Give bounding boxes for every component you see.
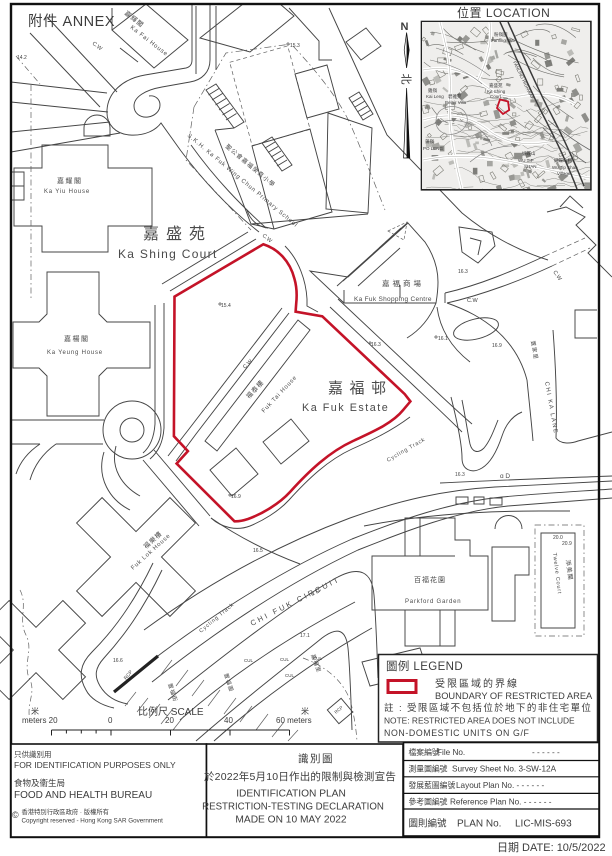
svg-text:File No.: File No. — [437, 748, 465, 757]
svg-text:16.3: 16.3 — [371, 342, 381, 348]
svg-text:40: 40 — [224, 716, 233, 725]
svg-text:meters 20: meters 20 — [22, 716, 58, 725]
svg-text:註 : 受限區域不包括位於地下的非住宅單位: 註 : 受限區域不包括位於地下的非住宅單位 — [384, 702, 592, 714]
svg-text:於2022年5月10日作出的限制與檢測宣告: 於2022年5月10日作出的限制與檢測宣告 — [204, 770, 396, 783]
svg-text:碧雅苑: 碧雅苑 — [448, 93, 462, 100]
svg-text:Ka Yeung House: Ka Yeung House — [47, 350, 103, 356]
svg-text:20: 20 — [165, 716, 174, 725]
svg-text:60 meters: 60 meters — [276, 716, 312, 725]
svg-text:©: © — [12, 810, 19, 820]
svg-text:Layout Plan No. - - - - -: Layout Plan No. - - - - - - — [456, 781, 545, 790]
svg-text:FOOD AND HEALTH BUREAU: FOOD AND HEALTH BUREAU — [14, 790, 152, 801]
svg-text:圖例 LEGEND: 圖例 LEGEND — [386, 659, 463, 673]
svg-text:IDENTIFICATION PLAN: IDENTIFICATION PLAN — [236, 789, 346, 800]
svg-text:NOTE: RESTRICTED AREA DOES NOT: NOTE: RESTRICTED AREA DOES NOT INCLUDE — [384, 716, 575, 726]
svg-text:參考圖編號: 參考圖編號 — [409, 797, 448, 807]
svg-text:嘉盛苑: 嘉盛苑 — [489, 82, 503, 89]
svg-text:米: 米 — [301, 706, 309, 716]
svg-text:N: N — [401, 21, 409, 33]
svg-text:C.W: C.W — [467, 298, 479, 304]
svg-text:蒲嶺: 蒲嶺 — [425, 138, 434, 145]
svg-text:Fanling Wai: Fanling Wai — [491, 38, 515, 43]
svg-text:0: 0 — [108, 716, 113, 725]
svg-text:蝴蝶山村: 蝴蝶山村 — [554, 157, 572, 164]
svg-text:嘉福商場: 嘉福商場 — [382, 278, 424, 288]
svg-text:北: 北 — [400, 74, 413, 85]
svg-text:百福花園: 百福花園 — [414, 575, 446, 584]
svg-text:Survey Sheet No. 3-SW-12A: Survey Sheet No. 3-SW-12A — [452, 765, 557, 774]
svg-text:14.2: 14.2 — [17, 55, 27, 61]
svg-text:Village: Village — [557, 171, 571, 176]
svg-text:RESTRICTION-TESTING DECLARATIO: RESTRICTION-TESTING DECLARATION — [202, 802, 384, 813]
svg-text:Belair Villa: Belair Villa — [445, 100, 467, 105]
svg-text:PLAN No.: PLAN No. — [457, 819, 501, 830]
svg-text:16.9: 16.9 — [492, 343, 502, 349]
svg-text:識別圖: 識別圖 — [298, 752, 334, 765]
svg-text:16.9: 16.9 — [231, 494, 241, 500]
svg-text:Parkford Garden: Parkford Garden — [405, 599, 461, 605]
svg-text:嘉福邨: 嘉福邨 — [328, 380, 393, 397]
svg-text:ɑ D: ɑ D — [500, 473, 510, 480]
svg-text:Ka Fuk Estate: Ka Fuk Estate — [302, 402, 389, 414]
svg-text:CUL.: CUL. — [285, 673, 295, 678]
svg-text:Wu Tip Shan: Wu Tip Shan — [552, 165, 578, 170]
svg-text:食物及衞生局: 食物及衞生局 — [14, 778, 65, 788]
svg-text:Court: Court — [490, 94, 502, 99]
svg-text:圖則編號: 圖則編號 — [409, 818, 448, 830]
svg-text:16.3: 16.3 — [458, 269, 468, 275]
svg-text:米: 米 — [31, 706, 39, 716]
svg-text:Ka Yiu House: Ka Yiu House — [44, 189, 90, 195]
svg-text:CUL: CUL — [313, 656, 322, 661]
svg-text:測量圖編號: 測量圖編號 — [409, 764, 448, 774]
svg-text:只供識別用: 只供識別用 — [14, 749, 52, 759]
svg-text:Ka Shing Court: Ka Shing Court — [118, 247, 218, 261]
svg-text:嘉盛苑: 嘉盛苑 — [143, 225, 212, 243]
svg-text:16.3: 16.3 — [455, 472, 465, 478]
svg-text:位置 LOCATION: 位置 LOCATION — [457, 5, 550, 20]
svg-text:PO LENG: PO LENG — [423, 146, 444, 151]
svg-text:CUL: CUL — [280, 657, 289, 662]
svg-text:16.1: 16.1 — [438, 336, 448, 342]
svg-text:發展藍圖編號: 發展藍圖編號 — [409, 780, 456, 790]
svg-text:SHAN: SHAN — [524, 164, 537, 169]
svg-text:CUL: CUL — [244, 658, 253, 663]
svg-text:LIC-MIS-693: LIC-MIS-693 — [515, 819, 572, 830]
svg-text:17.1: 17.1 — [300, 633, 310, 639]
svg-text:嘉耀閣: 嘉耀閣 — [57, 176, 83, 185]
svg-text:16.6: 16.6 — [113, 658, 123, 664]
svg-text:15.3: 15.3 — [290, 43, 300, 49]
svg-text:15.4: 15.4 — [221, 303, 231, 309]
svg-text:嘉楊閣: 嘉楊閣 — [64, 334, 90, 343]
svg-text:香港特別行政區政府 · 版權所有: 香港特別行政區政府 · 版權所有 — [22, 807, 109, 816]
svg-text:20.9: 20.9 — [562, 541, 572, 547]
svg-text:檔案編號: 檔案編號 — [409, 747, 440, 757]
svg-text:Kai Leng: Kai Leng — [426, 94, 444, 99]
svg-text:Reference Plan No. - - - -: Reference Plan No. - - - - - - — [450, 798, 552, 807]
svg-text:NON-DOMESTIC UNITS ON G/F: NON-DOMESTIC UNITS ON G/F — [384, 728, 530, 738]
svg-text:BOUNDARY OF RESTRICTED AREA: BOUNDARY OF RESTRICTED AREA — [435, 691, 593, 701]
svg-text:Ka Fuk Shopping Centre: Ka Fuk Shopping Centre — [354, 296, 432, 303]
svg-text:附件 ANNEX: 附件 ANNEX — [28, 13, 115, 30]
svg-text:16.5: 16.5 — [253, 548, 263, 554]
svg-text:雞嶺: 雞嶺 — [428, 87, 437, 94]
svg-text:FOR IDENTIFICATION PURPOSES ON: FOR IDENTIFICATION PURPOSES ONLY — [14, 760, 176, 770]
svg-text:WU TIP: WU TIP — [518, 158, 534, 163]
svg-text:受限區域的界線: 受限區域的界線 — [435, 677, 519, 690]
svg-text:- - - - - -: - - - - - - — [532, 748, 560, 757]
svg-text:蝴蝶山: 蝴蝶山 — [522, 150, 536, 157]
svg-text:Copyright reserved - Hong Kong: Copyright reserved - Hong Kong SAR Gover… — [22, 818, 164, 825]
svg-text:MADE ON 10 MAY 2022: MADE ON 10 MAY 2022 — [235, 815, 347, 826]
svg-text:日期 DATE: 10/5/2022: 日期 DATE: 10/5/2022 — [497, 841, 606, 854]
svg-text:粉嶺圍: 粉嶺圍 — [494, 31, 508, 38]
